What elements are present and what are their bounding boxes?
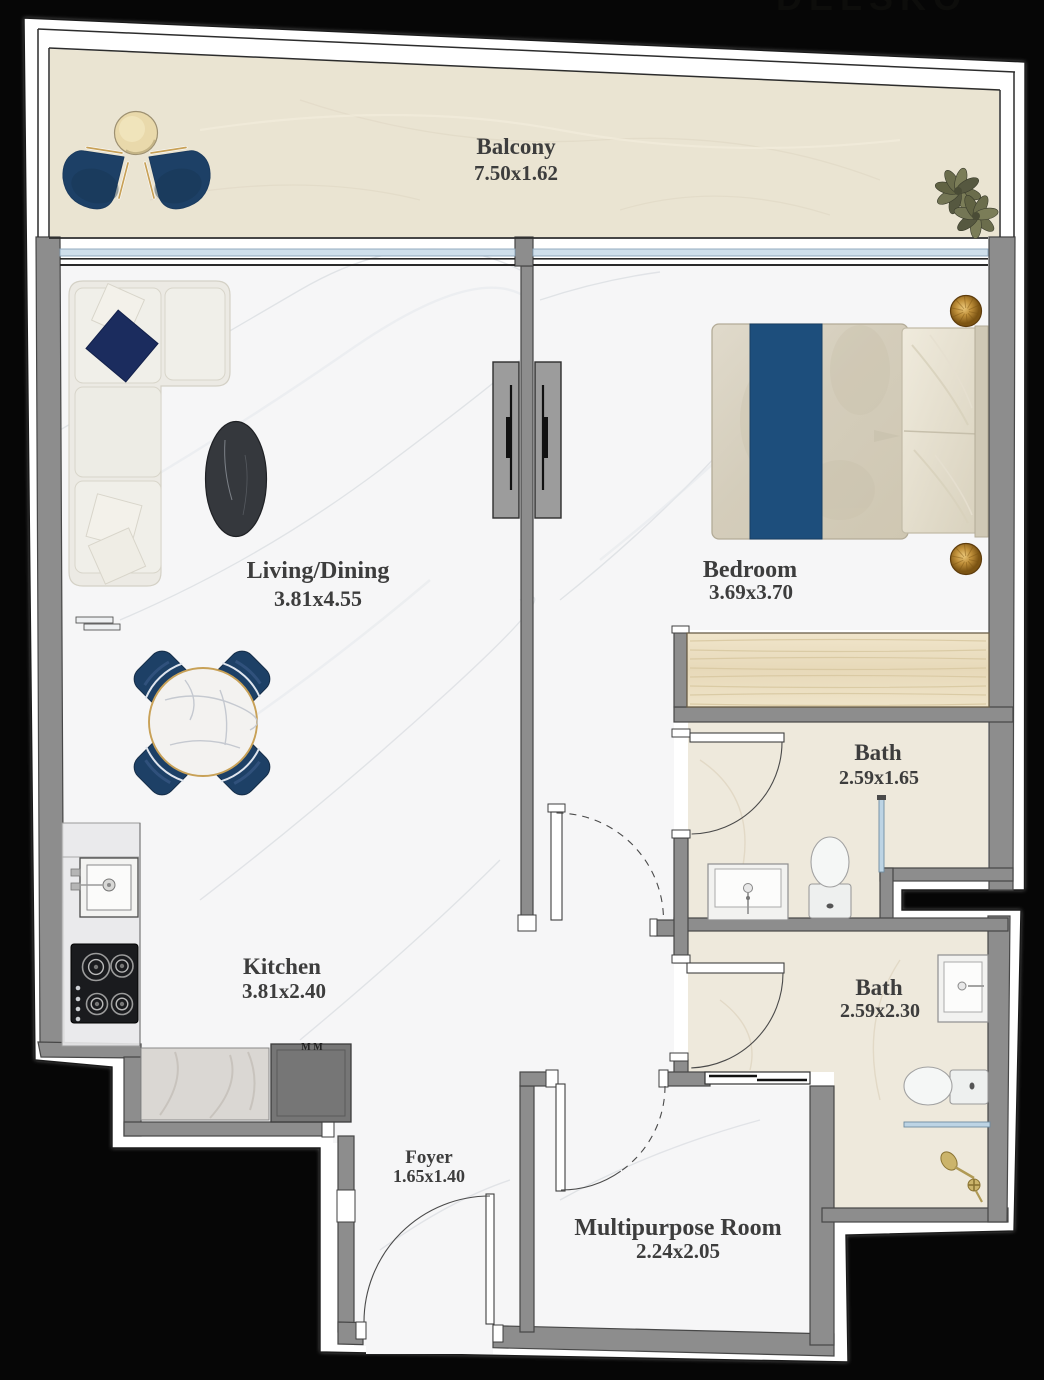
svg-text:Bath: Bath [855,975,903,1000]
svg-text:3.81x4.55: 3.81x4.55 [274,586,362,611]
svg-text:7.50x1.62: 7.50x1.62 [474,161,558,185]
svg-text:2.59x1.65: 2.59x1.65 [839,767,919,789]
svg-text:M M: M M [301,1042,323,1053]
svg-text:3.81x2.40: 3.81x2.40 [242,979,326,1003]
svg-text:Bath: Bath [854,740,902,765]
svg-text:Balcony: Balcony [476,134,556,159]
svg-text:Kitchen: Kitchen [243,954,321,979]
svg-text:Foyer: Foyer [405,1147,453,1168]
svg-text:Living/Dining: Living/Dining [247,558,390,584]
svg-text:3.69x3.70: 3.69x3.70 [709,580,793,604]
svg-text:2.59x2.30: 2.59x2.30 [840,1000,920,1022]
svg-text:2.24x2.05: 2.24x2.05 [636,1239,720,1263]
svg-text:1.65x1.40: 1.65x1.40 [393,1166,465,1186]
svg-text:DELSKO: DELSKO [776,0,968,18]
svg-text:Multipurpose Room: Multipurpose Room [574,1215,781,1241]
